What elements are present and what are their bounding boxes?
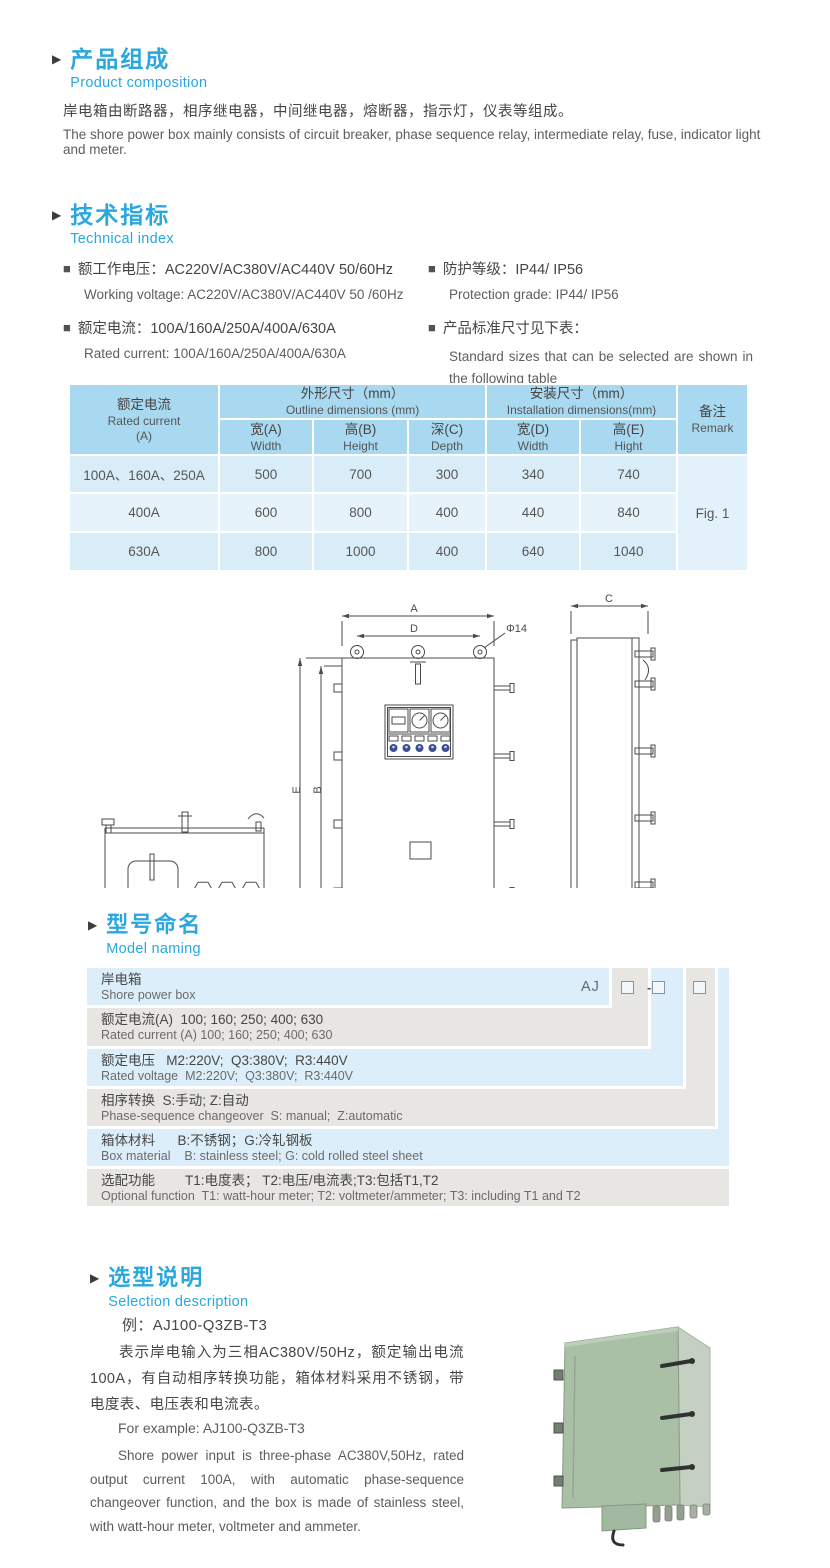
cell-remark: Fig. 1	[678, 456, 747, 570]
naming-row-en: Shore power box	[101, 988, 609, 1003]
sub-header-width-d: 宽(D) Width	[487, 420, 579, 454]
spec-working-voltage-en: Working voltage: AC220V/AC380V/AC440V 50…	[84, 287, 413, 302]
table-row: 100A、160A、250A 500 700 300 340 740 Fig. …	[70, 456, 747, 492]
product-composition-text-cn: 岸电箱由断路器，相序继电器，中间继电器，熔断器，指示灯，仪表等组成。	[63, 100, 783, 121]
cell-install-width: 340	[487, 456, 579, 492]
header-cn: 深(C)	[409, 421, 485, 439]
cell-install-width: 440	[487, 494, 579, 531]
dimensions-table: 额定电流 Rated current (A) 外形尺寸（mm） Outline …	[68, 383, 749, 572]
header-en: Remark	[678, 421, 747, 436]
header-en: Rated current	[70, 414, 218, 429]
spec-rated-current-cn: ■ 额定电流：100A/160A/250A/400A/630A	[63, 317, 413, 338]
group-header-installation: 安装尺寸（mm） Installation dimensions(mm)	[487, 385, 676, 418]
header-en: Width	[220, 439, 312, 454]
cell-width: 600	[220, 494, 312, 531]
code-box-icon	[652, 981, 665, 994]
selection-description-cn: 表示岸电输入为三相AC380V/50Hz，额定输出电流100A，有自动相序转换功…	[90, 1340, 464, 1418]
spec-protection-grade-en: Protection grade: IP44/ IP56	[449, 287, 758, 302]
group-header-outline: 外形尺寸（mm） Outline dimensions (mm)	[220, 385, 485, 418]
cell-install-hight: 1040	[581, 533, 676, 570]
spec-text: 产品标准尺寸见下表：	[443, 317, 588, 338]
spec-standard-sizes-cn: ■ 产品标准尺寸见下表：	[428, 317, 758, 338]
naming-row-en: Phase-sequence changeover S: manual; Z:a…	[101, 1109, 715, 1124]
naming-row-cn: 岸电箱	[101, 971, 609, 988]
model-code-prefix: AJ	[581, 979, 600, 995]
section-selection-header: ▶ 选型说明 Selection description	[90, 1265, 248, 1310]
spec-text: 额定电流：100A/160A/250A/400A/630A	[78, 317, 336, 338]
naming-row-optional-function: 选配功能 T1:电度表； T2:电压/电流表;T3:包括T1,T2 Option…	[87, 1169, 729, 1206]
sub-header-height-b: 高(B) Height	[314, 420, 407, 454]
dim-label-e: E	[291, 786, 303, 793]
naming-row-en: Rated current (A) 100; 160; 250; 400; 63…	[101, 1028, 648, 1043]
outline-drawing-figure: A D Φ14 E B C	[60, 576, 770, 888]
naming-row-cn: 箱体材料 B:不锈钢；G:冷轧钢板	[101, 1132, 729, 1149]
section-arrow-icon: ▶	[90, 1272, 99, 1284]
header-en: Outline dimensions (mm)	[220, 403, 485, 418]
header-cn: 额定电流	[70, 396, 218, 414]
code-dash: -	[647, 982, 651, 994]
naming-row-shore-power-box: 岸电箱 Shore power box	[87, 968, 609, 1005]
model-code-box-2: -	[647, 981, 665, 994]
dim-label-b: B	[312, 786, 324, 793]
naming-row-rated-current: 额定电流(A) 100; 160; 250; 400; 630 Rated cu…	[87, 1008, 648, 1046]
cell-install-width: 640	[487, 533, 579, 570]
header-en: Width	[487, 439, 579, 454]
naming-row-cn: 选配功能 T1:电度表； T2:电压/电流表;T3:包括T1,T2	[101, 1172, 729, 1189]
product-photo	[550, 1300, 770, 1555]
cell-current: 630A	[70, 533, 218, 570]
section-title-en: Product composition	[70, 75, 207, 91]
sub-header-depth-c: 深(C) Depth	[409, 420, 485, 454]
section-title-en: Model naming	[106, 941, 202, 957]
spec-text: 额工作电压：AC220V/AC380V/AC440V 50/60Hz	[78, 258, 393, 279]
cell-depth: 400	[409, 494, 485, 531]
section-title-en: Technical index	[70, 231, 174, 247]
section-titles: 型号命名 Model naming	[106, 912, 202, 957]
square-bullet-icon: ■	[428, 262, 436, 275]
naming-row-en: Optional function T1: watt-hour meter; T…	[101, 1189, 729, 1204]
section-title-cn: 选型说明	[108, 1265, 248, 1291]
header-en: Installation dimensions(mm)	[487, 403, 676, 418]
header-cn: 备注	[678, 403, 747, 421]
section-arrow-icon: ▶	[52, 209, 61, 221]
section-arrow-icon: ▶	[52, 53, 61, 65]
sub-header-hight-e: 高(E) Hight	[581, 420, 676, 454]
section-title-cn: 产品组成	[70, 46, 207, 72]
cell-current: 100A、160A、250A	[70, 456, 218, 492]
naming-row-box-material: 箱体材料 B:不锈钢；G:冷轧钢板 Box material B: stainl…	[87, 1129, 729, 1166]
section-arrow-icon: ▶	[88, 919, 97, 931]
code-box-icon	[621, 981, 634, 994]
header-cn: 宽(A)	[220, 421, 312, 439]
spec-protection-grade-cn: ■ 防护等级：IP44/ IP56	[428, 258, 758, 279]
code-box-icon	[693, 981, 706, 994]
header-cn: 高(B)	[314, 421, 407, 439]
selection-example-en: For example: AJ100-Q3ZB-T3	[118, 1420, 305, 1436]
dim-label-c: C	[605, 593, 613, 605]
header-cn: 安装尺寸（mm）	[487, 385, 676, 403]
section-titles: 技术指标 Technical index	[70, 202, 174, 247]
spec-column-left: ■ 额工作电压：AC220V/AC380V/AC440V 50/60Hz Wor…	[63, 258, 413, 376]
dim-label-a: A	[410, 603, 418, 615]
cell-depth: 400	[409, 533, 485, 570]
section-product-composition-header: ▶ 产品组成 Product composition	[52, 46, 207, 91]
cell-height: 800	[314, 494, 407, 531]
naming-row-cn: 额定电压 M2:220V; Q3:380V; R3:440V	[101, 1052, 683, 1069]
model-naming-diagram: 岸电箱 Shore power box 额定电流(A) 100; 160; 25…	[87, 968, 729, 1206]
section-model-naming-header: ▶ 型号命名 Model naming	[88, 912, 202, 957]
table-row: 400A 600 800 400 440 840	[70, 494, 747, 531]
naming-row-en: Box material B: stainless steel; G: cold…	[101, 1149, 729, 1164]
col-header-rated-current: 额定电流 Rated current (A)	[70, 385, 218, 454]
header-cn: 宽(D)	[487, 421, 579, 439]
section-technical-index-header: ▶ 技术指标 Technical index	[52, 202, 174, 247]
datasheet-page: { "icons": { "section_marker": "▶", "bul…	[0, 0, 830, 1568]
sub-header-width-a: 宽(A) Width	[220, 420, 312, 454]
col-header-remark: 备注 Remark	[678, 385, 747, 454]
header-en: Depth	[409, 439, 485, 454]
naming-row-cn: 额定电流(A) 100; 160; 250; 400; 630	[101, 1011, 648, 1028]
model-code-box-3	[693, 981, 706, 994]
naming-row-cn: 相序转换 S:手动; Z:自动	[101, 1092, 715, 1109]
square-bullet-icon: ■	[63, 321, 71, 334]
section-titles: 选型说明 Selection description	[108, 1265, 248, 1310]
section-title-cn: 技术指标	[70, 202, 174, 228]
selection-description-en: Shore power input is three-phase AC380V,…	[90, 1444, 464, 1538]
hole-diameter-label: Φ14	[506, 623, 527, 635]
square-bullet-icon: ■	[428, 321, 436, 334]
model-code-box-1	[621, 981, 634, 994]
section-titles: 产品组成 Product composition	[70, 46, 207, 91]
header-en: Height	[314, 439, 407, 454]
dim-label-d: D	[410, 623, 418, 635]
header-cn: 外形尺寸（mm）	[220, 385, 485, 403]
cell-install-hight: 740	[581, 456, 676, 492]
header-cn: 高(E)	[581, 421, 676, 439]
naming-row-rated-voltage: 额定电压 M2:220V; Q3:380V; R3:440V Rated vol…	[87, 1049, 683, 1086]
cell-depth: 300	[409, 456, 485, 492]
header-en: Hight	[581, 439, 676, 454]
section-title-cn: 型号命名	[106, 912, 202, 938]
square-bullet-icon: ■	[63, 262, 71, 275]
cell-width: 800	[220, 533, 312, 570]
selection-example-cn: 例：AJ100-Q3ZB-T3	[122, 1314, 267, 1335]
naming-row-phase-sequence: 相序转换 S:手动; Z:自动 Phase-sequence changeove…	[87, 1089, 715, 1126]
spec-text: 防护等级：IP44/ IP56	[443, 258, 583, 279]
section-title-en: Selection description	[108, 1294, 248, 1310]
spec-rated-current-en: Rated current: 100A/160A/250A/400A/630A	[84, 346, 413, 361]
table-row: 630A 800 1000 400 640 1040	[70, 533, 747, 570]
spec-working-voltage-cn: ■ 额工作电压：AC220V/AC380V/AC440V 50/60Hz	[63, 258, 413, 279]
naming-row-en: Rated voltage M2:220V; Q3:380V; R3:440V	[101, 1069, 683, 1084]
cell-current: 400A	[70, 494, 218, 531]
product-composition-text-en: The shore power box mainly consists of c…	[63, 127, 783, 157]
cell-height: 700	[314, 456, 407, 492]
cell-height: 1000	[314, 533, 407, 570]
header-unit: (A)	[70, 429, 218, 444]
cell-install-hight: 840	[581, 494, 676, 531]
cell-width: 500	[220, 456, 312, 492]
